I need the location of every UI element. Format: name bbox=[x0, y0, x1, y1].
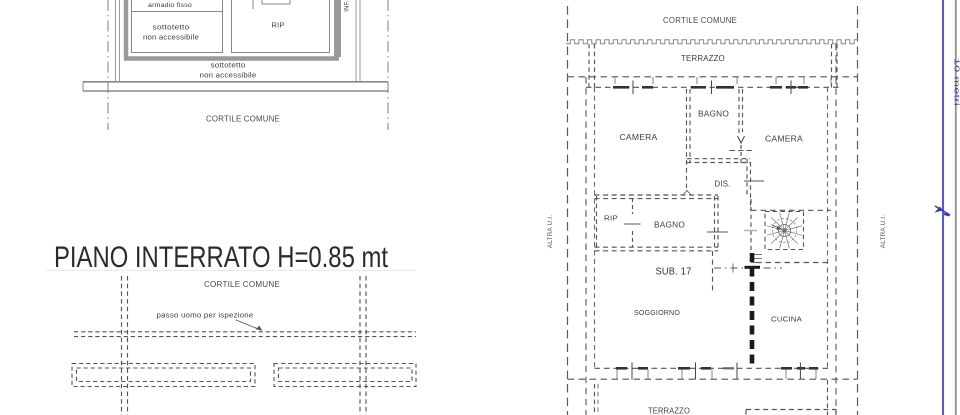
svg-text:CAMERA: CAMERA bbox=[765, 135, 803, 144]
svg-text:ALTRA U.I.: ALTRA U.I. bbox=[880, 215, 887, 249]
svg-text:CAMERA: CAMERA bbox=[620, 133, 658, 142]
svg-text:SOGGIORNO: SOGGIORNO bbox=[634, 308, 680, 317]
svg-text:10 metri: 10 metri bbox=[953, 58, 960, 106]
svg-text:sottotetto: sottotetto bbox=[153, 23, 190, 32]
svg-text:SUB. 17: SUB. 17 bbox=[656, 267, 692, 278]
svg-text:CUCINA: CUCINA bbox=[771, 315, 803, 324]
svg-text:INF.: INF. bbox=[345, 0, 351, 12]
svg-text:non accessibile: non accessibile bbox=[143, 33, 199, 42]
svg-text:non accessibile: non accessibile bbox=[200, 71, 257, 80]
svg-text:TERRAZZO: TERRAZZO bbox=[648, 407, 690, 415]
svg-text:TERRAZZO: TERRAZZO bbox=[681, 54, 725, 63]
svg-text:CORTILE COMUNE: CORTILE COMUNE bbox=[204, 280, 280, 289]
svg-text:sottotetto: sottotetto bbox=[211, 61, 246, 70]
svg-text:BAGNO: BAGNO bbox=[654, 221, 685, 230]
svg-text:passo uomo per ispezione: passo uomo per ispezione bbox=[157, 311, 254, 320]
svg-text:ALTRA U.I.: ALTRA U.I. bbox=[547, 215, 554, 249]
svg-text:DIS.: DIS. bbox=[715, 180, 731, 189]
svg-text:BAGNO: BAGNO bbox=[698, 110, 729, 119]
svg-text:CORTILE COMUNE: CORTILE COMUNE bbox=[663, 16, 737, 25]
svg-text:armadio fisso: armadio fisso bbox=[148, 2, 192, 9]
svg-text:CORTILE COMUNE: CORTILE COMUNE bbox=[206, 115, 280, 124]
svg-text:RIP: RIP bbox=[604, 214, 618, 223]
svg-text:PIANO INTERRATO H=0.85 mt: PIANO INTERRATO H=0.85 mt bbox=[54, 241, 388, 274]
svg-text:RIP: RIP bbox=[272, 21, 285, 30]
